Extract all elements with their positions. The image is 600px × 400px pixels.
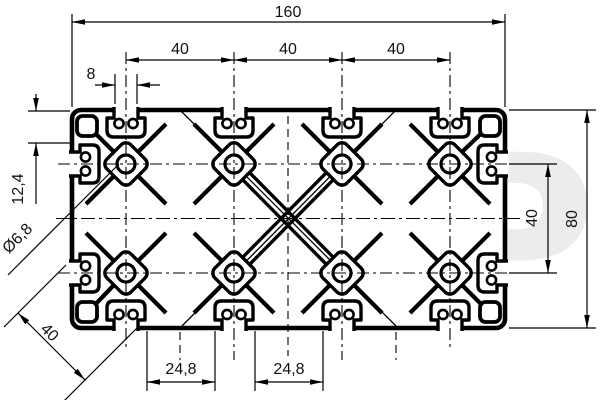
technical-drawing-page: CAP — [0, 0, 600, 400]
dim-text-24-8-left: 24,8 — [165, 361, 196, 378]
dim-text-40-right: 40 — [524, 209, 541, 227]
dim-text-40-diagonal: 40 — [37, 321, 62, 346]
dimension-8: 8 — [87, 66, 160, 104]
dim-text-40-3: 40 — [387, 41, 405, 58]
dim-text-40-1: 40 — [171, 41, 189, 58]
dim-text-8: 8 — [87, 66, 96, 83]
dimension-40-pitch: 40 40 40 — [126, 41, 450, 63]
profile-cross-section — [56, 52, 522, 360]
dim-text-12-4: 12,4 — [10, 173, 27, 204]
dim-text-80: 80 — [564, 210, 581, 228]
dimension-12-4: 12,4 — [10, 94, 70, 205]
dim-text-24-8-right: 24,8 — [273, 361, 304, 378]
profile-drawing-svg: CAP — [0, 0, 600, 400]
dim-text-160: 160 — [275, 4, 302, 21]
dim-text-40-2: 40 — [279, 41, 297, 58]
